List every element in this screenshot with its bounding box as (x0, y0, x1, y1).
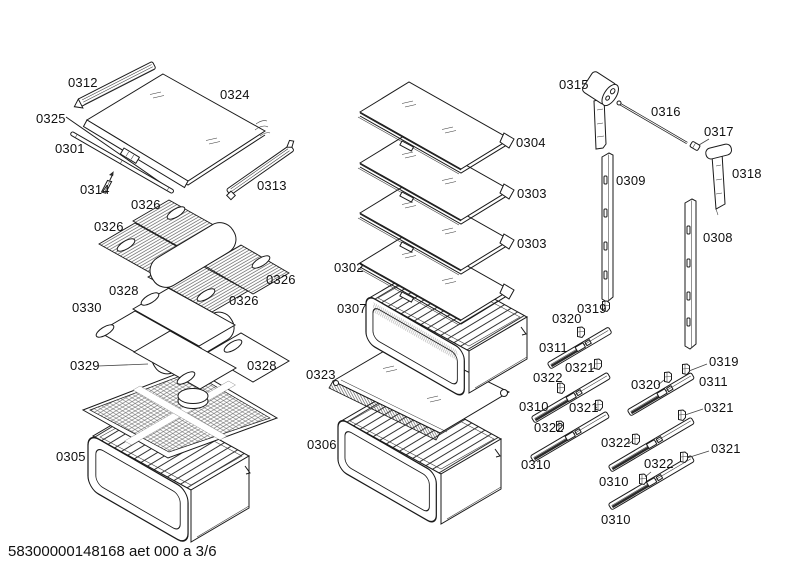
part-label-0321: 0321 (565, 360, 595, 375)
part-label-0314: 0314 (80, 182, 110, 197)
part-label-0311: 0311 (699, 374, 728, 389)
part-label-0326: 0326 (131, 197, 161, 212)
part-label-0322: 0322 (644, 456, 674, 471)
part-label-0303: 0303 (517, 236, 547, 251)
part-label-0322: 0322 (601, 435, 631, 450)
clip-0321 (595, 359, 602, 370)
clip-0319 (683, 364, 690, 375)
clip-0322 (633, 434, 640, 445)
part-label-0316: 0316 (651, 104, 681, 119)
part-label-0306: 0306 (307, 437, 337, 452)
part-label-0313: 0313 (257, 178, 287, 193)
page: 0312 0324 0325 0301 0314 0313 0326 0326 … (0, 0, 800, 566)
part-label-0322: 0322 (533, 370, 563, 385)
clip-0321 (679, 410, 686, 421)
part-label-0312: 0312 (68, 75, 98, 90)
clip-0322 (640, 474, 647, 485)
part-label-0305: 0305 (56, 449, 86, 464)
part-label-0328: 0328 (247, 358, 277, 373)
clip-0321 (681, 452, 688, 463)
part-0317-fitting (690, 141, 701, 151)
part-label-0323: 0323 (306, 367, 336, 382)
part-label-0319: 0319 (709, 354, 739, 369)
part-0309-rail (602, 153, 613, 302)
clip-0320 (578, 327, 585, 338)
exploded-parts-diagram: 0312 0324 0325 0301 0314 0313 0326 0326 … (0, 0, 800, 566)
part-label-0329: 0329 (70, 358, 100, 373)
part-label-0326: 0326 (266, 272, 296, 287)
part-label-0304: 0304 (516, 135, 546, 150)
cover-plates-group (94, 288, 289, 389)
part-label-0310: 0310 (601, 512, 631, 527)
part-label-0325: 0325 (36, 111, 66, 126)
part-label-0317: 0317 (704, 124, 734, 139)
part-label-0321: 0321 (711, 441, 741, 456)
part-label-0309: 0309 (616, 173, 646, 188)
part-label-0308: 0308 (703, 230, 733, 245)
part-label-0310: 0310 (519, 399, 549, 414)
part-label-0315: 0315 (559, 77, 589, 92)
part-label-0310: 0310 (521, 457, 551, 472)
part-label-0326: 0326 (229, 293, 259, 308)
part-label-0320: 0320 (631, 377, 661, 392)
part-label-0301: 0301 (55, 141, 85, 156)
part-label-0310: 0310 (599, 474, 629, 489)
part-label-0321: 0321 (569, 400, 599, 415)
part-label-0303: 0303 (517, 186, 547, 201)
part-label-0321: 0321 (704, 400, 734, 415)
part-label-0307: 0307 (337, 301, 367, 316)
part-label-0322: 0322 (534, 420, 564, 435)
part-label-0320: 0320 (552, 311, 582, 326)
part-label-0324: 0324 (220, 87, 250, 102)
part-label-0311: 0311 (539, 340, 568, 355)
part-0308-rail (685, 199, 696, 349)
part-0318-bracket (705, 143, 733, 215)
clip-0320 (665, 372, 672, 383)
part-label-0326: 0326 (94, 219, 124, 234)
part-label-0330: 0330 (72, 300, 102, 315)
part-label-0328: 0328 (109, 283, 139, 298)
part-label-0318: 0318 (732, 166, 762, 181)
document-code: 58300000148168 aet 000 a 3/6 (8, 543, 217, 560)
part-label-0302: 0302 (334, 260, 364, 275)
